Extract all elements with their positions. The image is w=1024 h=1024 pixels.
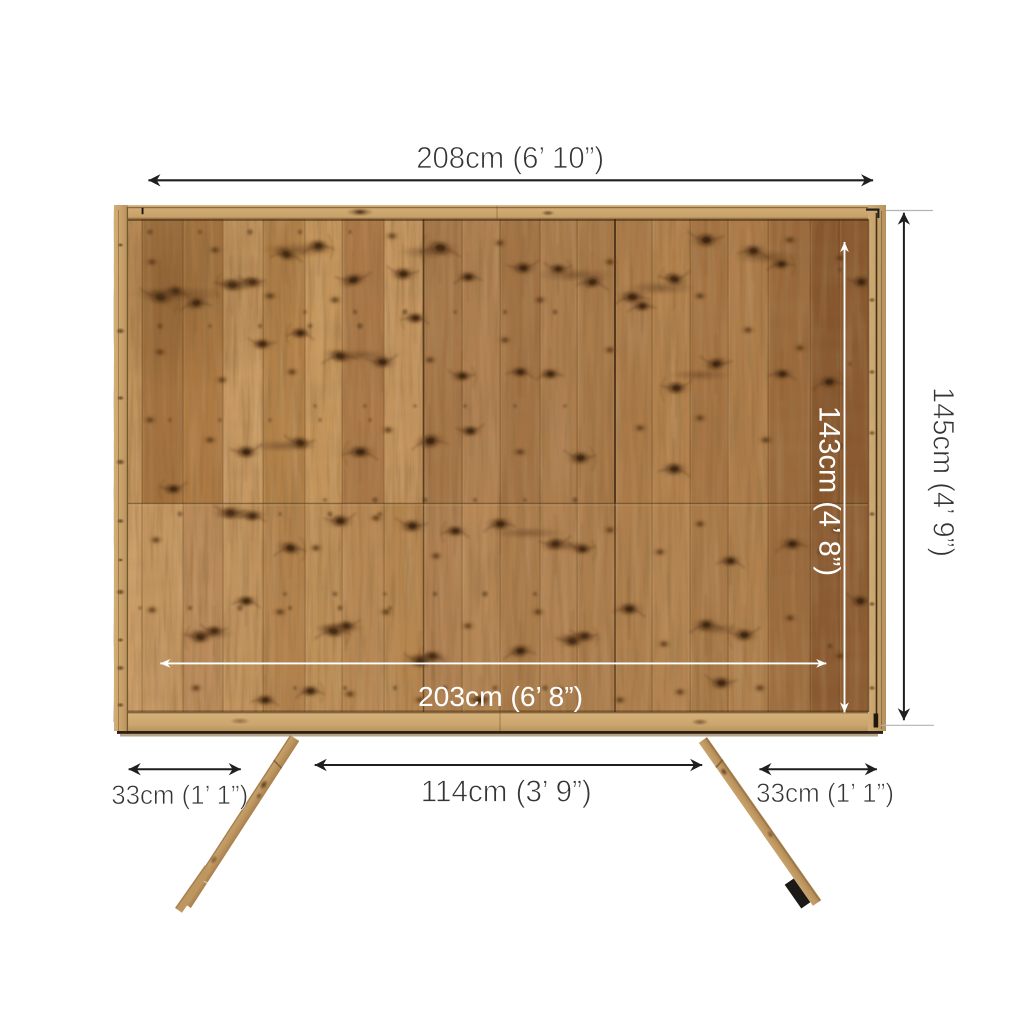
svg-text:145cm (4’ 9”): 145cm (4’ 9”) [926,387,959,557]
svg-text:208cm (6’ 10”): 208cm (6’ 10”) [416,140,604,175]
svg-text:33cm (1’ 1”): 33cm (1’ 1”) [756,778,894,808]
svg-text:203cm (6’ 8”): 203cm (6’ 8”) [418,681,583,712]
svg-text:143cm (4’ 8”): 143cm (4’ 8”) [813,406,846,576]
svg-text:114cm (3’ 9”): 114cm (3’ 9”) [421,773,592,808]
svg-text:33cm (1’ 1”): 33cm (1’ 1”) [111,780,248,810]
